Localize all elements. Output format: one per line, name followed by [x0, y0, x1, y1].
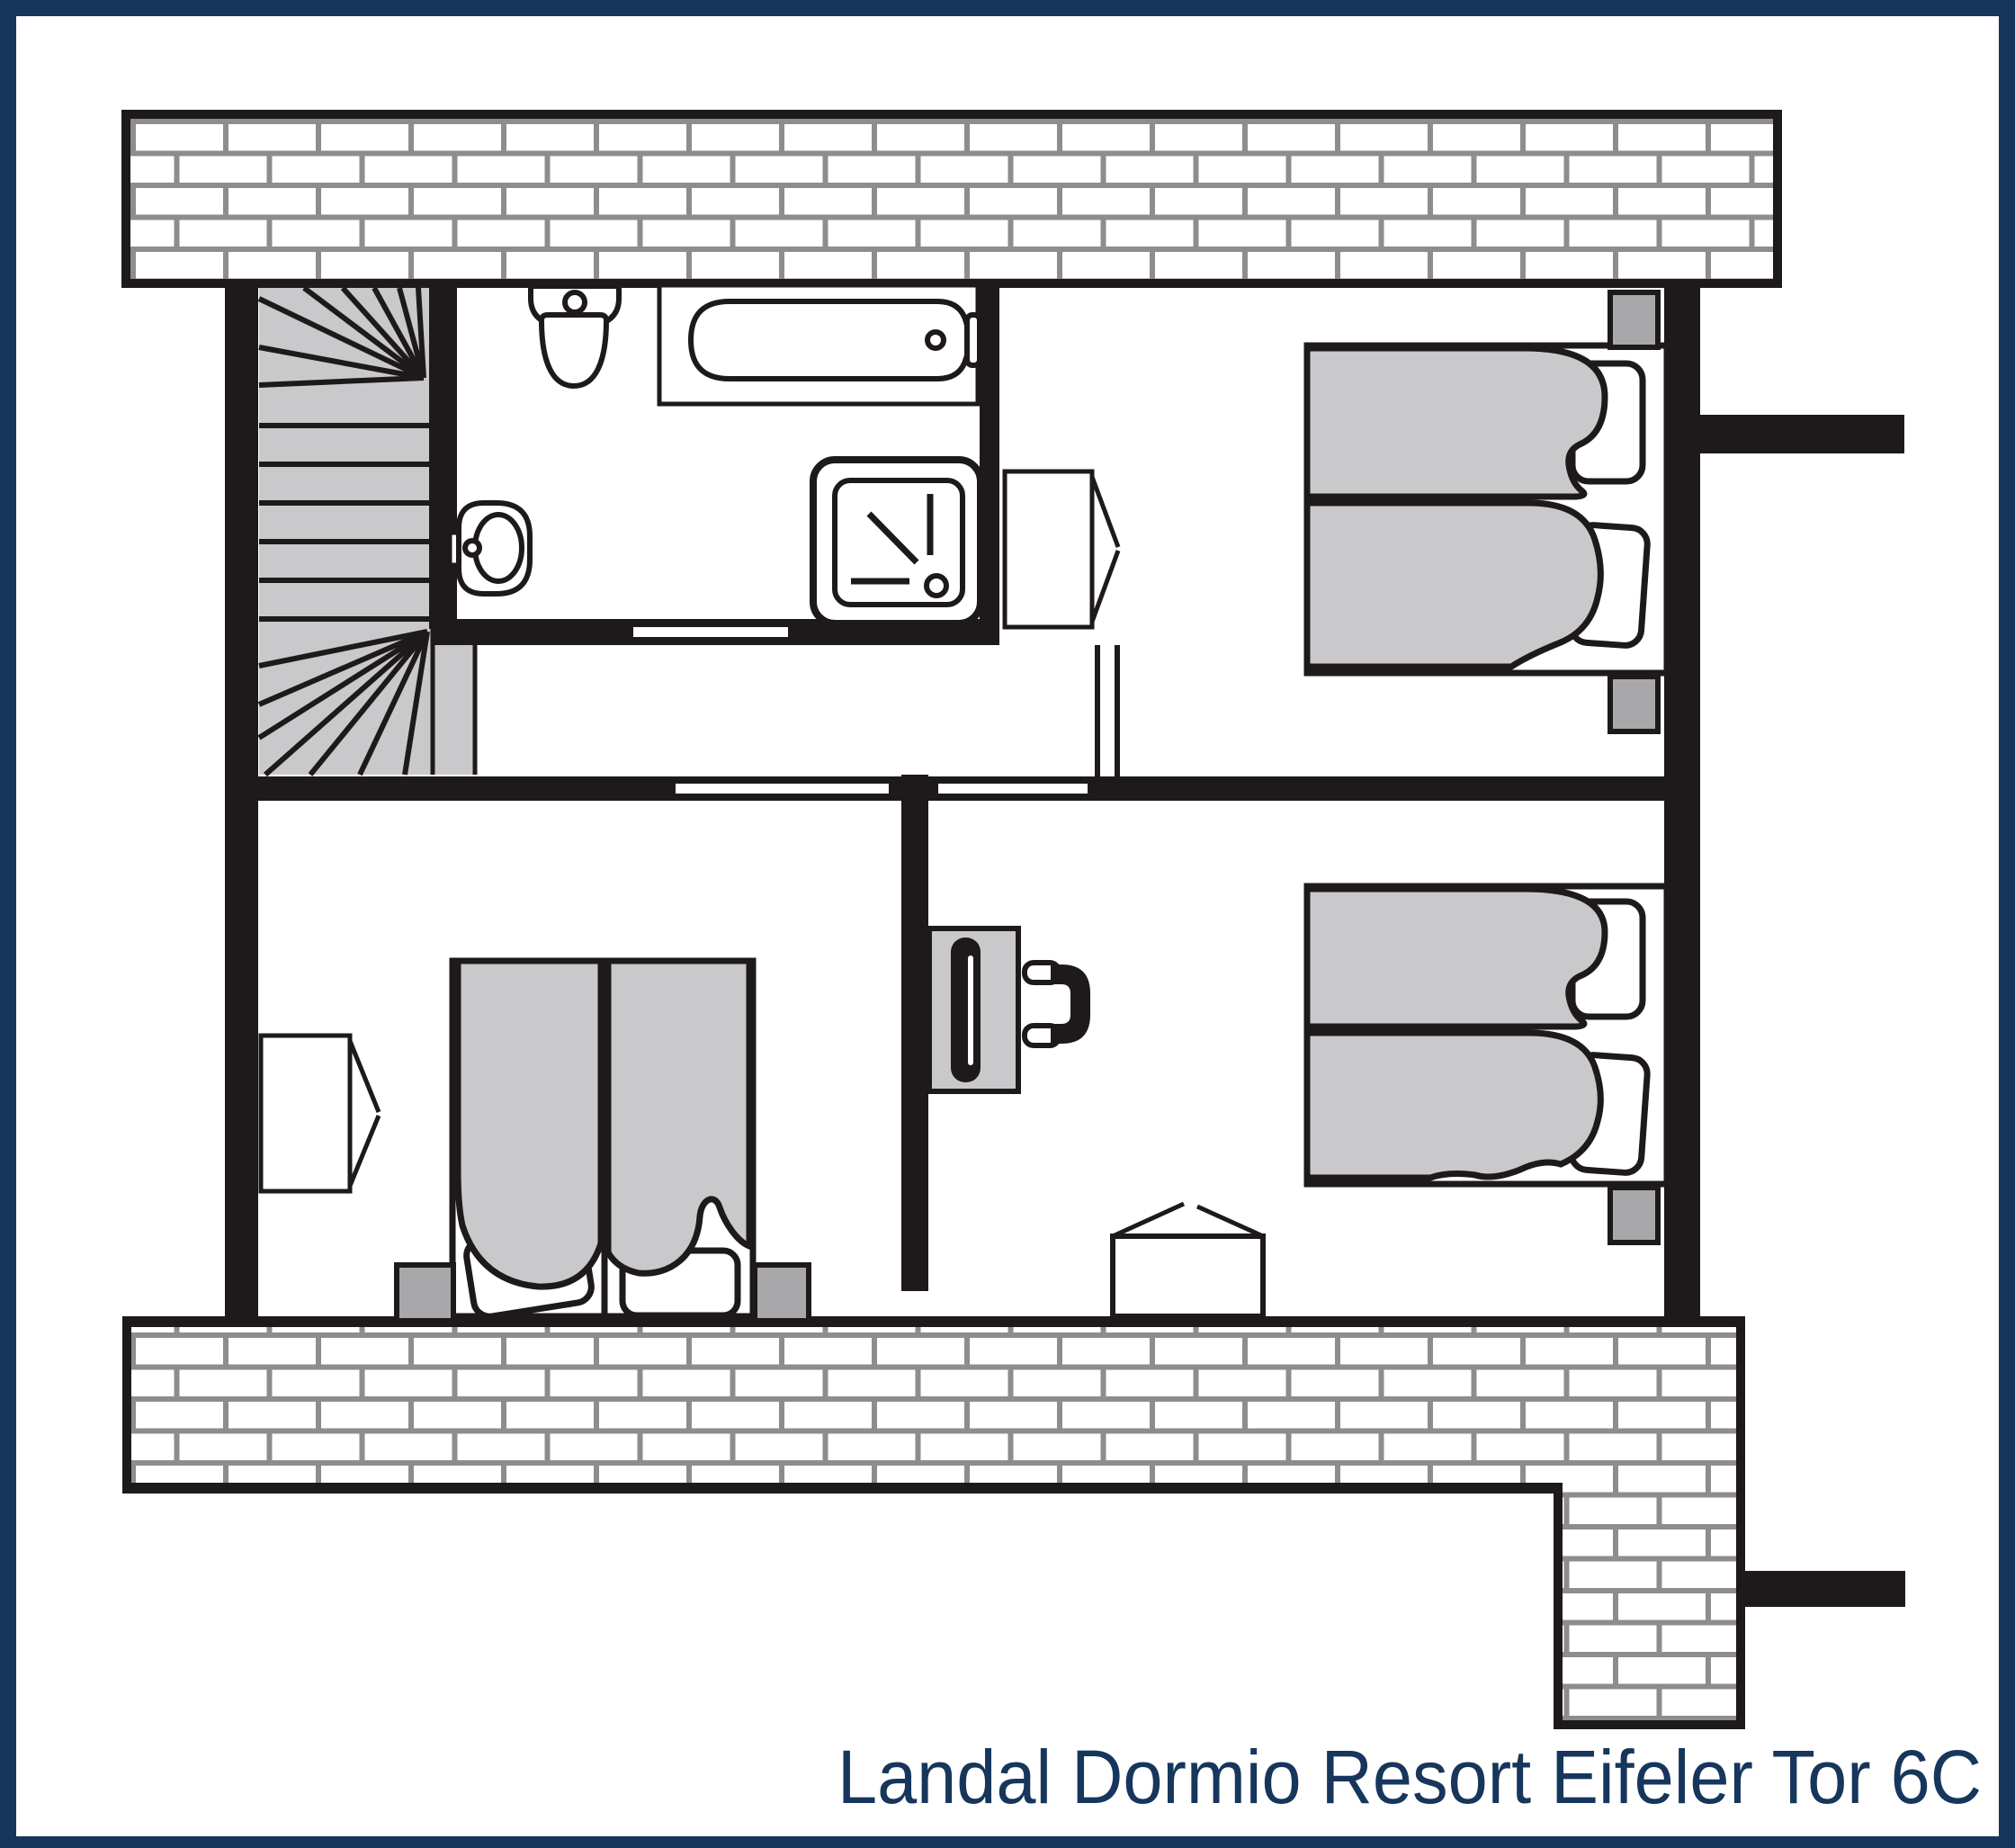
- svg-text:Landal Dormio Resort Eifeler T: Landal Dormio Resort Eifeler Tor 6C: [837, 1735, 1982, 1819]
